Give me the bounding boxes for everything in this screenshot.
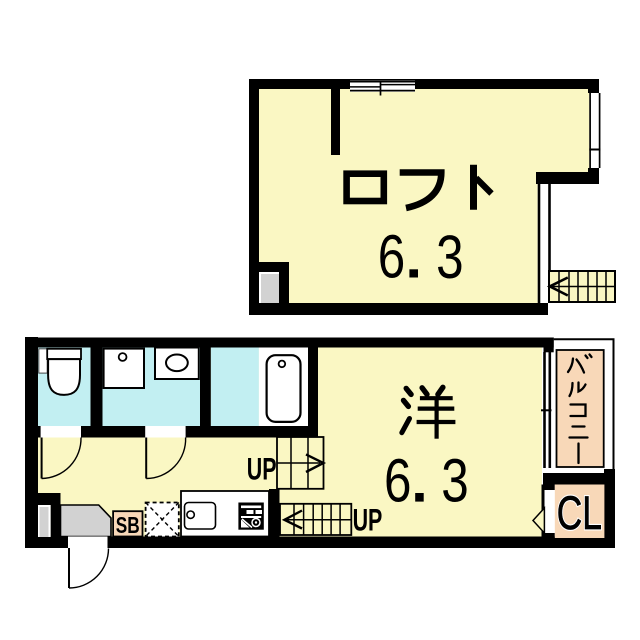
svg-text:UP: UP: [247, 451, 277, 486]
svg-text:3: 3: [441, 447, 468, 515]
svg-text:6: 6: [384, 447, 411, 515]
svg-text:SB: SB: [116, 514, 140, 539]
svg-text:6: 6: [378, 223, 405, 291]
svg-text:UP: UP: [353, 502, 383, 537]
svg-text:3: 3: [436, 223, 463, 291]
svg-text:CL: CL: [557, 486, 602, 539]
